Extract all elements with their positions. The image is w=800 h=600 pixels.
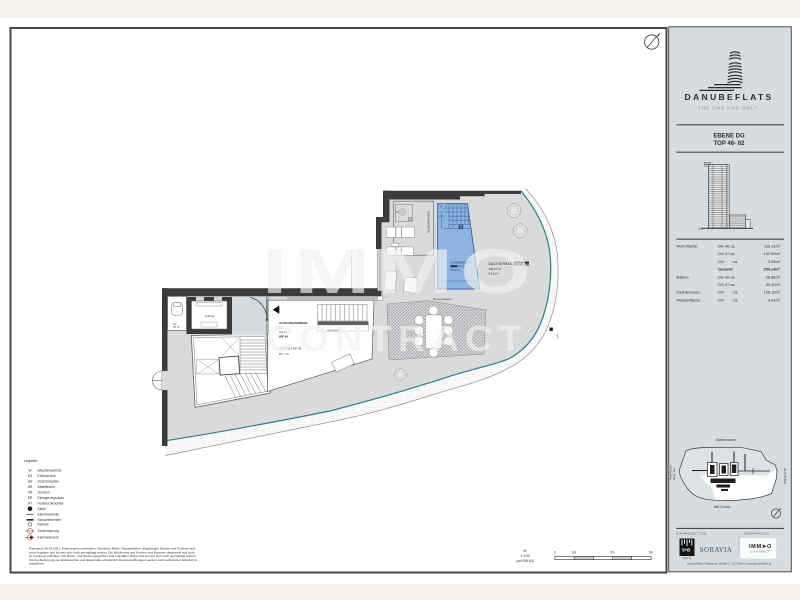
svg-text:VERMARKTUNG: VERMARKTUNG [744, 532, 769, 536]
svg-text:108.10m²: 108.10m² [764, 290, 781, 295]
svg-text:Gesamt:: Gesamt: [718, 267, 734, 272]
svg-text:Elektroverteiler: Elektroverteiler [38, 513, 61, 517]
svg-text:GS: GS [28, 480, 34, 484]
svg-text:AR: AR [28, 485, 33, 489]
svg-text:132.99m²: 132.99m² [764, 251, 781, 256]
svg-text:AUSSENKÜCHE: AUSSENKÜCHE [427, 211, 431, 234]
svg-text:DG: DG [718, 259, 724, 264]
svg-text:DG 47 ca.: DG 47 ca. [718, 282, 736, 287]
svg-text:EBENE DG: EBENE DG [713, 134, 745, 140]
svg-text:IMMO: IMMO [262, 237, 538, 307]
svg-text:Abstellraum: Abstellraum [38, 485, 56, 489]
svg-text:DG 47 ca.: DG 47 ca. [718, 251, 736, 256]
svg-text:(auf DIN A3): (auf DIN A3) [516, 559, 534, 563]
svg-text:Wagramer Str.: Wagramer Str. [783, 467, 787, 484]
svg-text:DanubeFlats | Wagramer St: DanubeFlats | Wagramer Straße 2, 1220 Wi… [687, 562, 771, 566]
svg-text:Wasserfläche:: Wasserfläche: [677, 297, 702, 302]
svg-text:CONTRACT: CONTRACT [751, 550, 771, 553]
svg-text:Einlagerungsraum: Einlagerungsraum [38, 496, 65, 500]
svg-text:S+B: S+B [682, 548, 690, 553]
svg-text:DG 46 ca.: DG 46 ca. [718, 274, 736, 279]
svg-text:Legende:: Legende: [24, 459, 38, 463]
svg-text:Für die Bedienung von Einbaumö: Für die Bedienung von Einbaumöbel und Na… [29, 558, 197, 562]
svg-text:1:100: 1:100 [520, 554, 530, 558]
svg-text:Alte Donau: Alte Donau [714, 505, 731, 509]
svg-text:5m: 5m [649, 551, 654, 555]
svg-text:Schachtelement: Schachtelement [38, 518, 62, 522]
svg-text:DG 46 ca.: DG 46 ca. [718, 244, 736, 249]
svg-text:VR 46: VR 46 [173, 327, 180, 329]
svg-text:Fallrohr: Fallrohr [38, 523, 50, 527]
svg-text:Geschirrspüler: Geschirrspüler [38, 480, 60, 484]
svg-text:SORAVIA: SORAVIA [700, 547, 733, 554]
svg-text:DANUBEFLATS: DANUBEFLATS [684, 92, 773, 102]
svg-text:M: M [523, 549, 526, 553]
svg-text:Kaminelement: Kaminelement [38, 536, 59, 540]
svg-text:254.14m²: 254.14m² [763, 267, 780, 272]
svg-text:ca.: ca. [733, 290, 738, 295]
svg-text:ca.: ca. [733, 259, 738, 264]
svg-text:59.30m²: 59.30m² [766, 282, 781, 287]
svg-text:Dachterrasse:: Dachterrasse: [677, 290, 701, 295]
svg-text:3m: 3m [610, 551, 615, 555]
svg-text:DG: DG [718, 290, 724, 295]
svg-text:3.05m²: 3.05m² [768, 259, 781, 264]
svg-text:IMM➤O: IMM➤O [749, 543, 772, 550]
svg-text:Kaiserwasser: Kaiserwasser [716, 438, 737, 442]
svg-text:1m: 1m [572, 551, 577, 555]
svg-text:28.82m²: 28.82m² [766, 274, 781, 279]
svg-text:Irissg. Rad: Irissg. Rad [672, 467, 676, 480]
svg-text:Säule: Säule [38, 507, 47, 511]
svg-text:ER: ER [28, 496, 33, 500]
svg-text:EIN PROJEKT VON: EIN PROJEKT VON [677, 532, 707, 536]
svg-text:Balkon:: Balkon: [677, 274, 690, 279]
svg-text:0: 0 [554, 551, 556, 555]
svg-text:DG: DG [699, 227, 704, 231]
svg-text:9.41m²: 9.41m² [768, 297, 781, 302]
svg-text:118.11m²: 118.11m² [764, 244, 781, 249]
svg-text:ausgeführt.: ausgeführt. [29, 562, 45, 566]
svg-text:ca.: ca. [733, 297, 738, 302]
svg-text:Aufzug: Aufzug [205, 314, 215, 318]
svg-text:DG: DG [718, 297, 724, 302]
svg-text:THE ONE AND ONLY.: THE ONE AND ONLY. [698, 106, 760, 111]
svg-text:Deckensprung: Deckensprung [38, 529, 59, 533]
svg-text:Wohnfläche:: Wohnfläche: [677, 244, 699, 249]
svg-text:TOP 46- 02: TOP 46- 02 [714, 141, 745, 147]
svg-text:Vorraum: Vorraum [38, 491, 51, 495]
svg-text:HT: HT [28, 502, 32, 506]
svg-text:GRUPPE: GRUPPE [682, 558, 692, 560]
svg-text:Waschmaschine: Waschmaschine [38, 469, 62, 473]
svg-text:Handtuchtrockner: Handtuchtrockner [38, 502, 65, 506]
svg-text:CONTRACT: CONTRACT [266, 318, 528, 359]
svg-text:Neue Donau: Neue Donau [669, 465, 673, 480]
svg-text:WC: WC [173, 324, 177, 326]
svg-text:Kühlschrank: Kühlschrank [38, 474, 56, 478]
svg-text:VR: VR [28, 491, 33, 495]
